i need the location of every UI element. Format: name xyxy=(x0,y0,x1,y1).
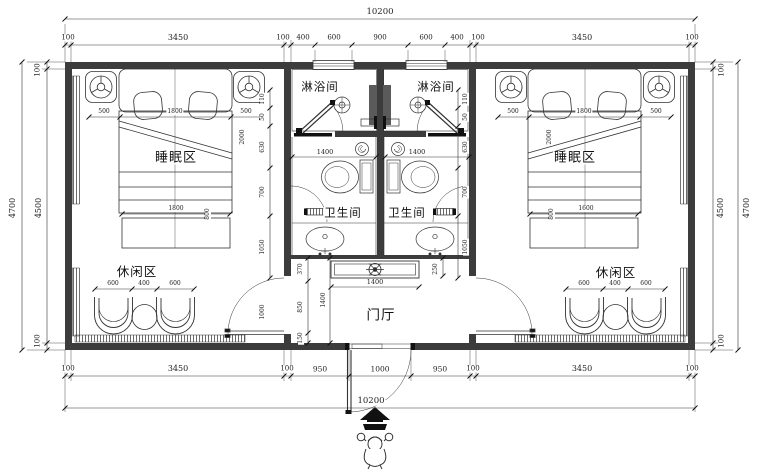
dim-bot-8: 100 xyxy=(684,366,699,373)
dim-chairs-right-2: 600 xyxy=(639,281,652,287)
entrance-arrow-icon xyxy=(360,407,390,430)
fan-icon xyxy=(366,264,384,276)
dim-left-inner: 4500 xyxy=(35,197,43,219)
dim-chain-r-0: 110 xyxy=(463,92,469,105)
dim-bed-right-diag: 2000 xyxy=(547,128,553,145)
dim-top-6: 600 xyxy=(418,35,433,42)
dim-bot-4: 1000 xyxy=(369,365,390,373)
dim-top-0: 100 xyxy=(60,35,75,42)
dim-bot-5: 950 xyxy=(432,365,448,373)
dim-shower-right: 1400 xyxy=(408,149,427,156)
dim-foyer-chain-0: 370 xyxy=(298,262,304,275)
dim-chain-r-4: 1050 xyxy=(463,238,469,255)
dim-top-9: 3450 xyxy=(571,34,593,42)
room-label-toilet-right: 卫生间 xyxy=(387,207,427,219)
person-figure xyxy=(357,433,393,469)
dim-cabinet-width: 1400 xyxy=(366,279,385,286)
dim-bed-left-0: 500 xyxy=(97,109,110,115)
dim-bottom-total: 10200 xyxy=(356,397,385,406)
dim-top-5: 900 xyxy=(372,35,387,42)
dim-left-outer: 4700 xyxy=(9,197,17,219)
mid-right-mirror xyxy=(383,70,469,256)
dim-top-7: 400 xyxy=(449,35,464,42)
dim-top-8: 100 xyxy=(470,35,485,42)
dim-bench-left-d: 800 xyxy=(205,207,211,220)
dim-foyer-depth: 1400 xyxy=(321,291,327,308)
dim-chain-r-2: 630 xyxy=(463,140,469,153)
dim-left-bottom: 100 xyxy=(35,333,42,348)
dim-left-top: 100 xyxy=(35,62,42,77)
dim-bed-right-2: 500 xyxy=(649,109,662,115)
dim-bed-right-1: 1800 xyxy=(575,109,592,115)
dim-right-outer: 4700 xyxy=(743,197,751,219)
room-label-toilet-left: 卫生间 xyxy=(323,207,363,219)
dim-right-bottom: 100 xyxy=(719,333,726,348)
dim-bed-left-diag: 2000 xyxy=(240,128,246,145)
dim-bed-left-1: 1800 xyxy=(166,109,183,115)
room-label-shower-left: 淋浴间 xyxy=(300,81,340,93)
dim-chain-r-1: 50 xyxy=(463,112,469,122)
dim-foyer-chain-2: 150 xyxy=(298,331,304,344)
dim-top-total: 10200 xyxy=(365,8,394,17)
dim-bed-right-0: 500 xyxy=(506,109,519,115)
dim-cabinet-depth: 250 xyxy=(433,262,439,275)
dim-chain-l-0: 110 xyxy=(260,92,266,105)
foyer-cabinet-icon xyxy=(331,261,419,278)
dim-bot-6: 100 xyxy=(465,366,480,373)
room-label-foyer: 门厅 xyxy=(366,309,397,323)
dim-bed-left-2: 500 xyxy=(239,109,252,115)
dim-right-top: 100 xyxy=(719,62,726,77)
dim-chain-l-1: 50 xyxy=(260,112,266,122)
dim-top-2: 100 xyxy=(275,35,290,42)
room-label-sleep-right: 睡眠区 xyxy=(553,152,597,165)
dim-bot-1: 3450 xyxy=(167,365,189,373)
room-label-shower-right: 淋浴间 xyxy=(416,81,456,93)
room-label-leisure-right: 休闲区 xyxy=(595,267,638,280)
dim-chairs-left-2: 600 xyxy=(168,281,181,287)
dim-top-3: 400 xyxy=(295,35,310,42)
dim-bot-2: 100 xyxy=(279,366,294,373)
dim-foyer-chain-1: 850 xyxy=(298,300,304,313)
floor-plan: 10200 100 3450 100 400 600 900 600 400 1… xyxy=(0,0,760,473)
room-label-sleep-left: 睡眠区 xyxy=(154,152,198,165)
dim-bot-7: 3450 xyxy=(571,365,593,373)
dim-chain-l-3: 700 xyxy=(260,185,266,198)
dim-chain-r-3: 700 xyxy=(463,185,469,198)
dim-bot-3: 950 xyxy=(312,365,328,373)
dim-shower-left: 1400 xyxy=(316,149,335,156)
room-label-leisure-left: 休闲区 xyxy=(116,266,159,279)
dim-chairs-left-1: 400 xyxy=(137,281,150,287)
dim-bot-0: 100 xyxy=(60,366,75,373)
dim-bench-left-w: 1800 xyxy=(167,206,184,212)
dim-chairs-right-0: 600 xyxy=(577,281,590,287)
dim-right-inner: 4500 xyxy=(717,197,725,219)
dim-chain-l-2: 630 xyxy=(260,140,266,153)
dim-top-10: 100 xyxy=(684,35,699,42)
dim-door-width: 1000 xyxy=(260,303,266,320)
dim-chain-l-4: 1050 xyxy=(260,238,266,255)
dim-chairs-left-0: 600 xyxy=(106,281,119,287)
dim-chairs-right-1: 400 xyxy=(608,281,621,287)
dim-bench-right-d: 800 xyxy=(549,207,555,220)
dim-bench-right-w: 1600 xyxy=(577,206,594,212)
dim-top-4: 600 xyxy=(326,35,341,42)
dim-top-1: 3450 xyxy=(167,34,189,42)
